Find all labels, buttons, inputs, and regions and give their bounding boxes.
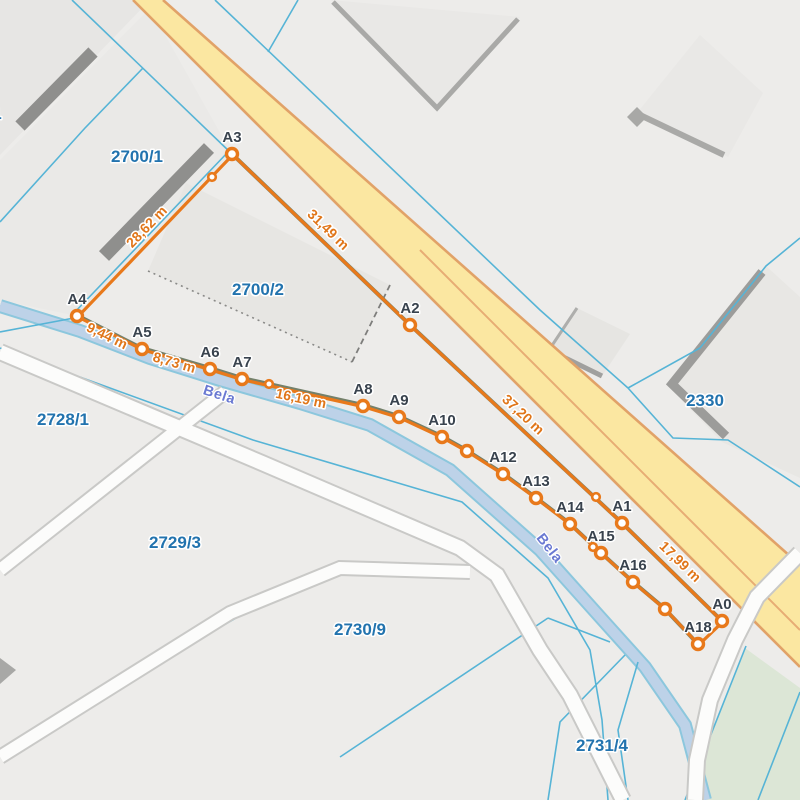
vertex-A14[interactable] xyxy=(565,519,576,530)
parcel-label-2330: 2330 xyxy=(686,391,724,410)
vertex-label-A5: A5 xyxy=(132,324,151,341)
vertex-A7[interactable] xyxy=(237,374,248,385)
vertex-A12[interactable] xyxy=(498,469,509,480)
vertex-label-A12: A12 xyxy=(489,449,517,466)
vertex-A4[interactable] xyxy=(72,311,83,322)
vertex-label-A2: A2 xyxy=(400,300,419,317)
parcel-label-1: 1 xyxy=(0,104,2,123)
midpoint-node-1[interactable] xyxy=(265,380,273,388)
vertex-A10[interactable] xyxy=(437,432,448,443)
vertex-A13[interactable] xyxy=(531,493,542,504)
vertex-label-A16: A16 xyxy=(619,557,647,574)
vertex-label-A6: A6 xyxy=(200,344,219,361)
parcel-label-2700-2: 2700/2 xyxy=(232,280,284,299)
vertex-label-A8: A8 xyxy=(353,381,372,398)
vertex-A2[interactable] xyxy=(405,320,416,331)
vertex-label-A15: A15 xyxy=(587,528,615,545)
vertex-label-A9: A9 xyxy=(389,392,408,409)
vertex-label-A7: A7 xyxy=(232,354,251,371)
vertex-A17[interactable] xyxy=(660,604,671,615)
vertex-label-A14: A14 xyxy=(556,499,584,516)
vertex-label-A4: A4 xyxy=(67,291,87,308)
parcel-label-2728-1: 2728/1 xyxy=(37,410,89,429)
vertex-label-A3: A3 xyxy=(222,129,241,146)
vertex-label-A13: A13 xyxy=(522,473,550,490)
map-svg: BelaBela 12700/12700/22728/12729/32730/9… xyxy=(0,0,800,800)
parcel-label-2731-4: 2731/4 xyxy=(576,736,629,755)
vertex-label-A10: A10 xyxy=(428,412,456,429)
vertex-A8[interactable] xyxy=(358,401,369,412)
midpoint-node-0[interactable] xyxy=(208,173,216,181)
vertex-A11[interactable] xyxy=(462,446,473,457)
vertex-label-A0: A0 xyxy=(712,596,731,613)
vertex-A18[interactable] xyxy=(693,639,704,650)
parcel-label-2730-9: 2730/9 xyxy=(334,620,386,639)
parcel-label-2729-3: 2729/3 xyxy=(149,533,201,552)
vertex-label-A18: A18 xyxy=(684,619,712,636)
vertex-A5[interactable] xyxy=(137,344,148,355)
vertex-A1[interactable] xyxy=(617,518,628,529)
map-canvas[interactable]: BelaBela 12700/12700/22728/12729/32730/9… xyxy=(0,0,800,800)
vertex-A0[interactable] xyxy=(717,616,728,627)
vertex-label-A1: A1 xyxy=(612,498,631,515)
midpoint-node-2[interactable] xyxy=(592,493,600,501)
parcel-label-2700-1: 2700/1 xyxy=(111,147,163,166)
vertex-A16[interactable] xyxy=(628,577,639,588)
vertex-A9[interactable] xyxy=(394,412,405,423)
vertex-A6[interactable] xyxy=(205,364,216,375)
vertex-A3[interactable] xyxy=(227,149,238,160)
